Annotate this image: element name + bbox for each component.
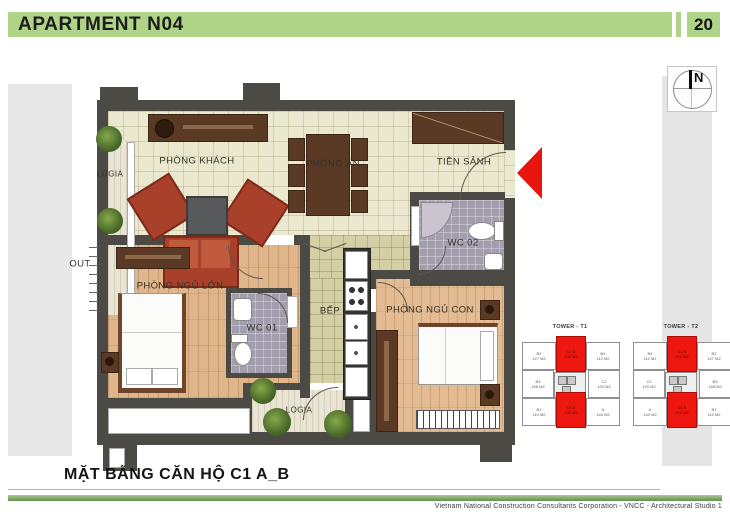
- caption-rule: [8, 489, 660, 490]
- unit-area: 120 M2: [597, 384, 610, 389]
- unit-area: 158 M2: [708, 384, 721, 389]
- dining-table: [306, 134, 350, 216]
- wall: [504, 100, 515, 150]
- plant-icon: [96, 126, 122, 152]
- north-label: N: [694, 70, 703, 85]
- unit-area: 100 M2: [564, 410, 577, 415]
- plant-icon: [324, 410, 352, 438]
- wardrobe: [376, 330, 398, 432]
- wardrobe: [412, 112, 504, 144]
- label-child-bedroom: PHÒNG NGỦ CON: [386, 305, 474, 316]
- unit-cell: B4112 M2: [586, 342, 620, 370]
- wall: [480, 445, 512, 462]
- unit-cell: A140 M2: [586, 398, 620, 426]
- dining-chair: [288, 164, 305, 187]
- tower-title: TOWER - T2: [664, 324, 699, 330]
- unit-cell: B3158 M2: [699, 370, 730, 398]
- wall: [97, 398, 248, 408]
- kitchen-sink-icon: [345, 314, 368, 340]
- unit-cell-highlighted: C1 A100 M2: [556, 392, 586, 428]
- wardrobe: [116, 247, 190, 269]
- north-indicator: N: [667, 66, 717, 112]
- compass-crosshair: [673, 88, 711, 89]
- double-bed: [118, 293, 186, 393]
- single-bed: [418, 323, 498, 385]
- plan-caption: MẶT BẰNG CĂN HỘ C1 A_B: [64, 466, 290, 484]
- north-arrow-icon: [689, 70, 692, 89]
- wall: [504, 198, 515, 445]
- unit-cell-highlighted: C1 B100 M2: [556, 336, 586, 372]
- toilet-icon: [234, 342, 252, 366]
- tv-cabinet: [148, 114, 268, 142]
- sink-icon: [233, 298, 252, 321]
- unit-area: 100 M2: [564, 354, 577, 359]
- plant-icon: [250, 378, 276, 404]
- fridge: [345, 251, 368, 279]
- footer-credit: Vietnam National Construction Consultant…: [435, 503, 722, 510]
- window: [411, 206, 420, 246]
- unit-cell-highlighted: C1 B100 M2: [667, 336, 697, 372]
- unit-area: 110 M2: [532, 412, 545, 417]
- unit-cell: B2127 M2: [522, 342, 556, 370]
- label-hall: TIỀN SẢNH: [437, 157, 491, 168]
- label-logia-bottom: LOGIA: [286, 406, 312, 415]
- sink-icon: [484, 253, 503, 270]
- label-master-bedroom: PHÒNG NGỦ LỚN: [137, 281, 224, 292]
- kitchen-cabinet: [345, 367, 368, 397]
- drawing-sheet: APARTMENT N04 20 N: [0, 0, 730, 516]
- unit-area: 100 M2: [675, 354, 688, 359]
- radiator: [416, 410, 500, 429]
- compass-circle-icon: [673, 70, 712, 109]
- window: [287, 296, 298, 328]
- tower-title: TOWER - T1: [553, 324, 588, 330]
- nightstand: [480, 300, 500, 320]
- unit-cell: A140 M2: [633, 398, 667, 426]
- ledge: [108, 408, 250, 434]
- unit-cell: C2120 M2: [633, 370, 665, 398]
- unit-area: 127 M2: [707, 356, 720, 361]
- unit-cell: C2120 M2: [588, 370, 620, 398]
- label-logia-left: LOGIA: [97, 170, 123, 179]
- corridor-floor: [310, 278, 343, 383]
- tower-keyplan-t1: TOWER - T1 B2127 M2 C1 B100 M2 B4112 M2 …: [520, 324, 620, 428]
- unit-cell-highlighted: C1 A100 M2: [667, 392, 697, 428]
- unit-cell: B1110 M2: [522, 398, 556, 426]
- wall-notch: [109, 448, 125, 468]
- unit-cell: B1110 M2: [697, 398, 730, 426]
- dining-chair: [288, 190, 305, 213]
- dining-chair: [288, 138, 305, 161]
- nightstand: [480, 384, 500, 406]
- label-kitchen: BẾP: [320, 306, 340, 317]
- unit-area: 100 M2: [675, 410, 688, 415]
- coffee-table: [186, 196, 228, 236]
- unit-area: 140 M2: [643, 412, 656, 417]
- wall: [300, 245, 310, 398]
- wall: [97, 100, 515, 111]
- tower-grid: B4112 M2 C1 B100 M2 B2127 M2 C2120 M2 B3…: [633, 336, 729, 426]
- label-living-room: PHÒNG KHÁCH: [159, 156, 234, 167]
- unit-area: 112 M2: [596, 356, 609, 361]
- wall: [243, 83, 280, 100]
- hatch-marks: [89, 247, 98, 313]
- unit-area: 158 M2: [531, 384, 544, 389]
- wall: [100, 87, 138, 100]
- label-dining-room: PHÒNG ĂN: [306, 159, 360, 170]
- unit-cell: B4112 M2: [633, 342, 667, 370]
- label-wc2: WC 02: [447, 238, 478, 249]
- stove-icon: [345, 281, 368, 311]
- floor-plan: PHÒNG KHÁCH PHÒNG ĂN TIỀN SẢNH LOGIA WC …: [0, 0, 730, 516]
- tower-grid: B2127 M2 C1 B100 M2 B4112 M2 B3158 M2 C2…: [522, 336, 618, 426]
- window: [127, 142, 135, 314]
- unit-cell: B2127 M2: [697, 342, 730, 370]
- unit-area: 127 M2: [532, 356, 545, 361]
- floor-speaker: [101, 352, 119, 373]
- tower-keyplan-t2: TOWER - T2 B4112 M2 C1 B100 M2 B2127 M2 …: [631, 324, 730, 428]
- wall: [410, 278, 515, 286]
- unit-area: 140 M2: [596, 412, 609, 417]
- label-out: OUT: [69, 259, 90, 270]
- unit-area: 112 M2: [643, 356, 656, 361]
- toilet-tank: [494, 221, 504, 241]
- dining-chair: [351, 190, 368, 213]
- unit-cell: B3158 M2: [522, 370, 554, 398]
- footer-bar: [8, 495, 722, 501]
- entrance-arrow-icon: [517, 147, 542, 199]
- plant-icon: [97, 208, 123, 234]
- kitchen-sink-icon: [345, 341, 368, 365]
- label-wc1: WC 01: [246, 323, 277, 334]
- unit-area: 120 M2: [642, 384, 655, 389]
- unit-area: 110 M2: [707, 412, 720, 417]
